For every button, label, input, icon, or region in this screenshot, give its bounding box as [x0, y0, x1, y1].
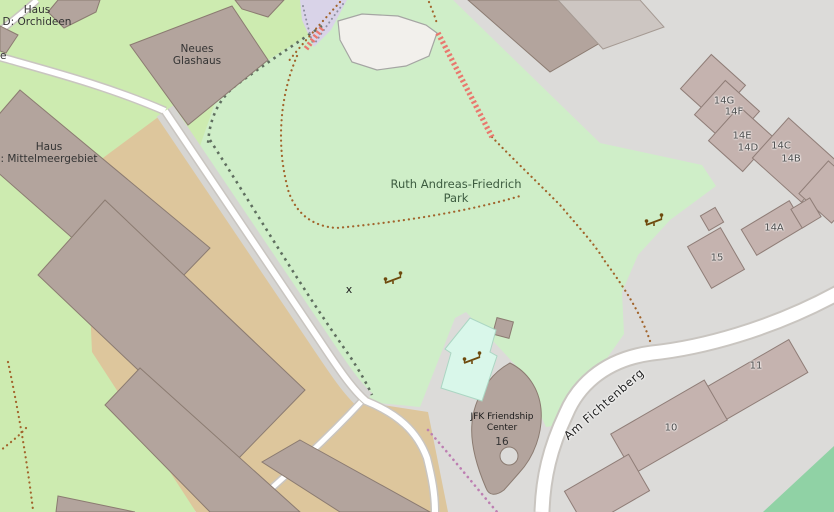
label-edge-fragment: e	[0, 50, 6, 62]
label-x-marker: x	[346, 284, 353, 296]
house-number: 14D	[738, 143, 758, 154]
house-number: 14A	[764, 223, 784, 234]
map-canvas[interactable]: Haus D: Orchideen e Neues Glashaus Haus …	[0, 0, 834, 512]
house-number: 14E	[732, 131, 751, 142]
house-number: 15	[711, 253, 724, 264]
house-number: 10	[665, 423, 678, 434]
house-number: 11	[750, 361, 763, 372]
label-neues-glashaus: Neues Glashaus	[173, 43, 221, 67]
house-number: 14G	[714, 96, 734, 107]
label-jfk-center: JFK Friendship Center 16	[471, 412, 534, 448]
house-number: 14B	[781, 154, 801, 165]
map-render	[0, 0, 834, 512]
label-jfk-number: 16	[471, 437, 534, 448]
label-haus-mittelmeer: Haus : Mittelmeergebiet	[0, 141, 97, 165]
house-number: 14F	[725, 107, 743, 118]
label-haus-orchideen: Haus D: Orchideen	[3, 4, 72, 28]
house-number: 14C	[771, 141, 791, 152]
jfk-notch	[500, 447, 518, 465]
label-park-name: Ruth Andreas-Friedrich Park	[390, 177, 521, 205]
